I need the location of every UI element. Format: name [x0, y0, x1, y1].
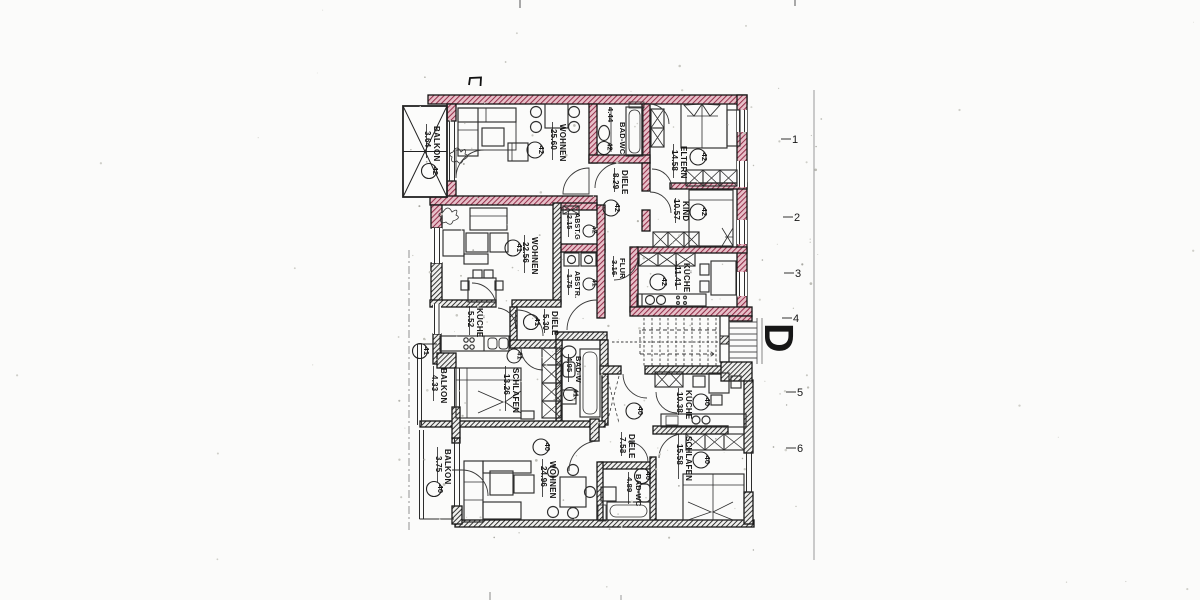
svg-text:40: 40	[703, 398, 712, 407]
svg-text:41: 41	[422, 347, 431, 356]
svg-text:40: 40	[644, 472, 653, 481]
svg-text:ELTERN: ELTERN	[679, 146, 688, 179]
svg-text:40: 40	[543, 443, 552, 452]
svg-text:3.75: 3.75	[434, 456, 443, 473]
svg-text:BALKON: BALKON	[443, 449, 452, 484]
svg-text:10.57: 10.57	[672, 199, 681, 220]
svg-text:KÜCHE: KÜCHE	[684, 390, 693, 420]
svg-text:7.58: 7.58	[618, 437, 627, 454]
svg-text:ABSTR.: ABSTR.	[573, 271, 580, 298]
svg-text:DIELE: DIELE	[550, 311, 559, 336]
svg-text:42: 42	[700, 153, 709, 162]
svg-text:4.95: 4.95	[565, 357, 574, 372]
svg-text:DIELE: DIELE	[620, 170, 629, 195]
svg-text:1: 1	[792, 134, 798, 146]
svg-text:4.89: 4.89	[625, 477, 634, 492]
svg-text:14.58: 14.58	[670, 150, 679, 171]
svg-text:25.60: 25.60	[549, 129, 558, 150]
svg-text:BALKON: BALKON	[439, 368, 448, 403]
svg-text:41: 41	[591, 279, 598, 287]
svg-text:2: 2	[794, 212, 800, 224]
svg-text:41: 41	[516, 352, 523, 360]
svg-text:40: 40	[703, 456, 712, 465]
svg-text:8.29: 8.29	[611, 173, 620, 190]
svg-text:11.41: 11.41	[673, 266, 682, 287]
svg-text:4.33: 4.33	[430, 375, 439, 392]
svg-text:4.44: 4.44	[606, 107, 615, 123]
svg-text:BAD-WC: BAD-WC	[618, 122, 627, 155]
svg-text:3: 3	[795, 268, 801, 280]
svg-text:KÜCHE: KÜCHE	[682, 263, 691, 293]
svg-text:ABST.G: ABST.G	[573, 213, 580, 240]
svg-text:3.64: 3.64	[423, 131, 432, 148]
svg-text:D: D	[756, 323, 802, 353]
svg-text:SCHLAFEN: SCHLAFEN	[684, 436, 693, 481]
svg-text:41: 41	[515, 244, 524, 253]
svg-text:41: 41	[533, 318, 542, 327]
svg-text:WOHNEN: WOHNEN	[548, 461, 557, 499]
svg-text:42: 42	[591, 226, 598, 234]
svg-text:42: 42	[537, 146, 546, 155]
svg-text:42: 42	[613, 204, 622, 213]
svg-text:5.52: 5.52	[466, 311, 475, 328]
svg-text:40: 40	[636, 407, 645, 416]
svg-text:WOHNEN: WOHNEN	[530, 237, 539, 275]
svg-text:24.96: 24.96	[539, 466, 548, 487]
svg-text:42: 42	[431, 167, 440, 176]
svg-text:10.38: 10.38	[675, 392, 684, 413]
svg-text:BAD-W: BAD-W	[574, 356, 583, 384]
svg-text:SCHLAFEN: SCHLAFEN	[511, 368, 520, 413]
svg-text:13.26: 13.26	[502, 374, 511, 395]
svg-text:DIELE: DIELE	[627, 434, 636, 459]
svg-text:4: 4	[793, 313, 799, 325]
svg-text:3.16: 3.16	[610, 260, 619, 275]
svg-text:KÜCHE: KÜCHE	[475, 308, 484, 338]
svg-text:15.58: 15.58	[675, 444, 684, 465]
svg-text:42: 42	[700, 208, 709, 217]
svg-text:41: 41	[572, 389, 579, 397]
svg-text:6: 6	[797, 443, 803, 455]
svg-text:42: 42	[660, 278, 669, 287]
svg-text:KIND: KIND	[681, 201, 690, 221]
svg-text:42: 42	[606, 143, 613, 151]
svg-text:5: 5	[797, 387, 803, 399]
svg-text:BALKON: BALKON	[432, 126, 441, 161]
